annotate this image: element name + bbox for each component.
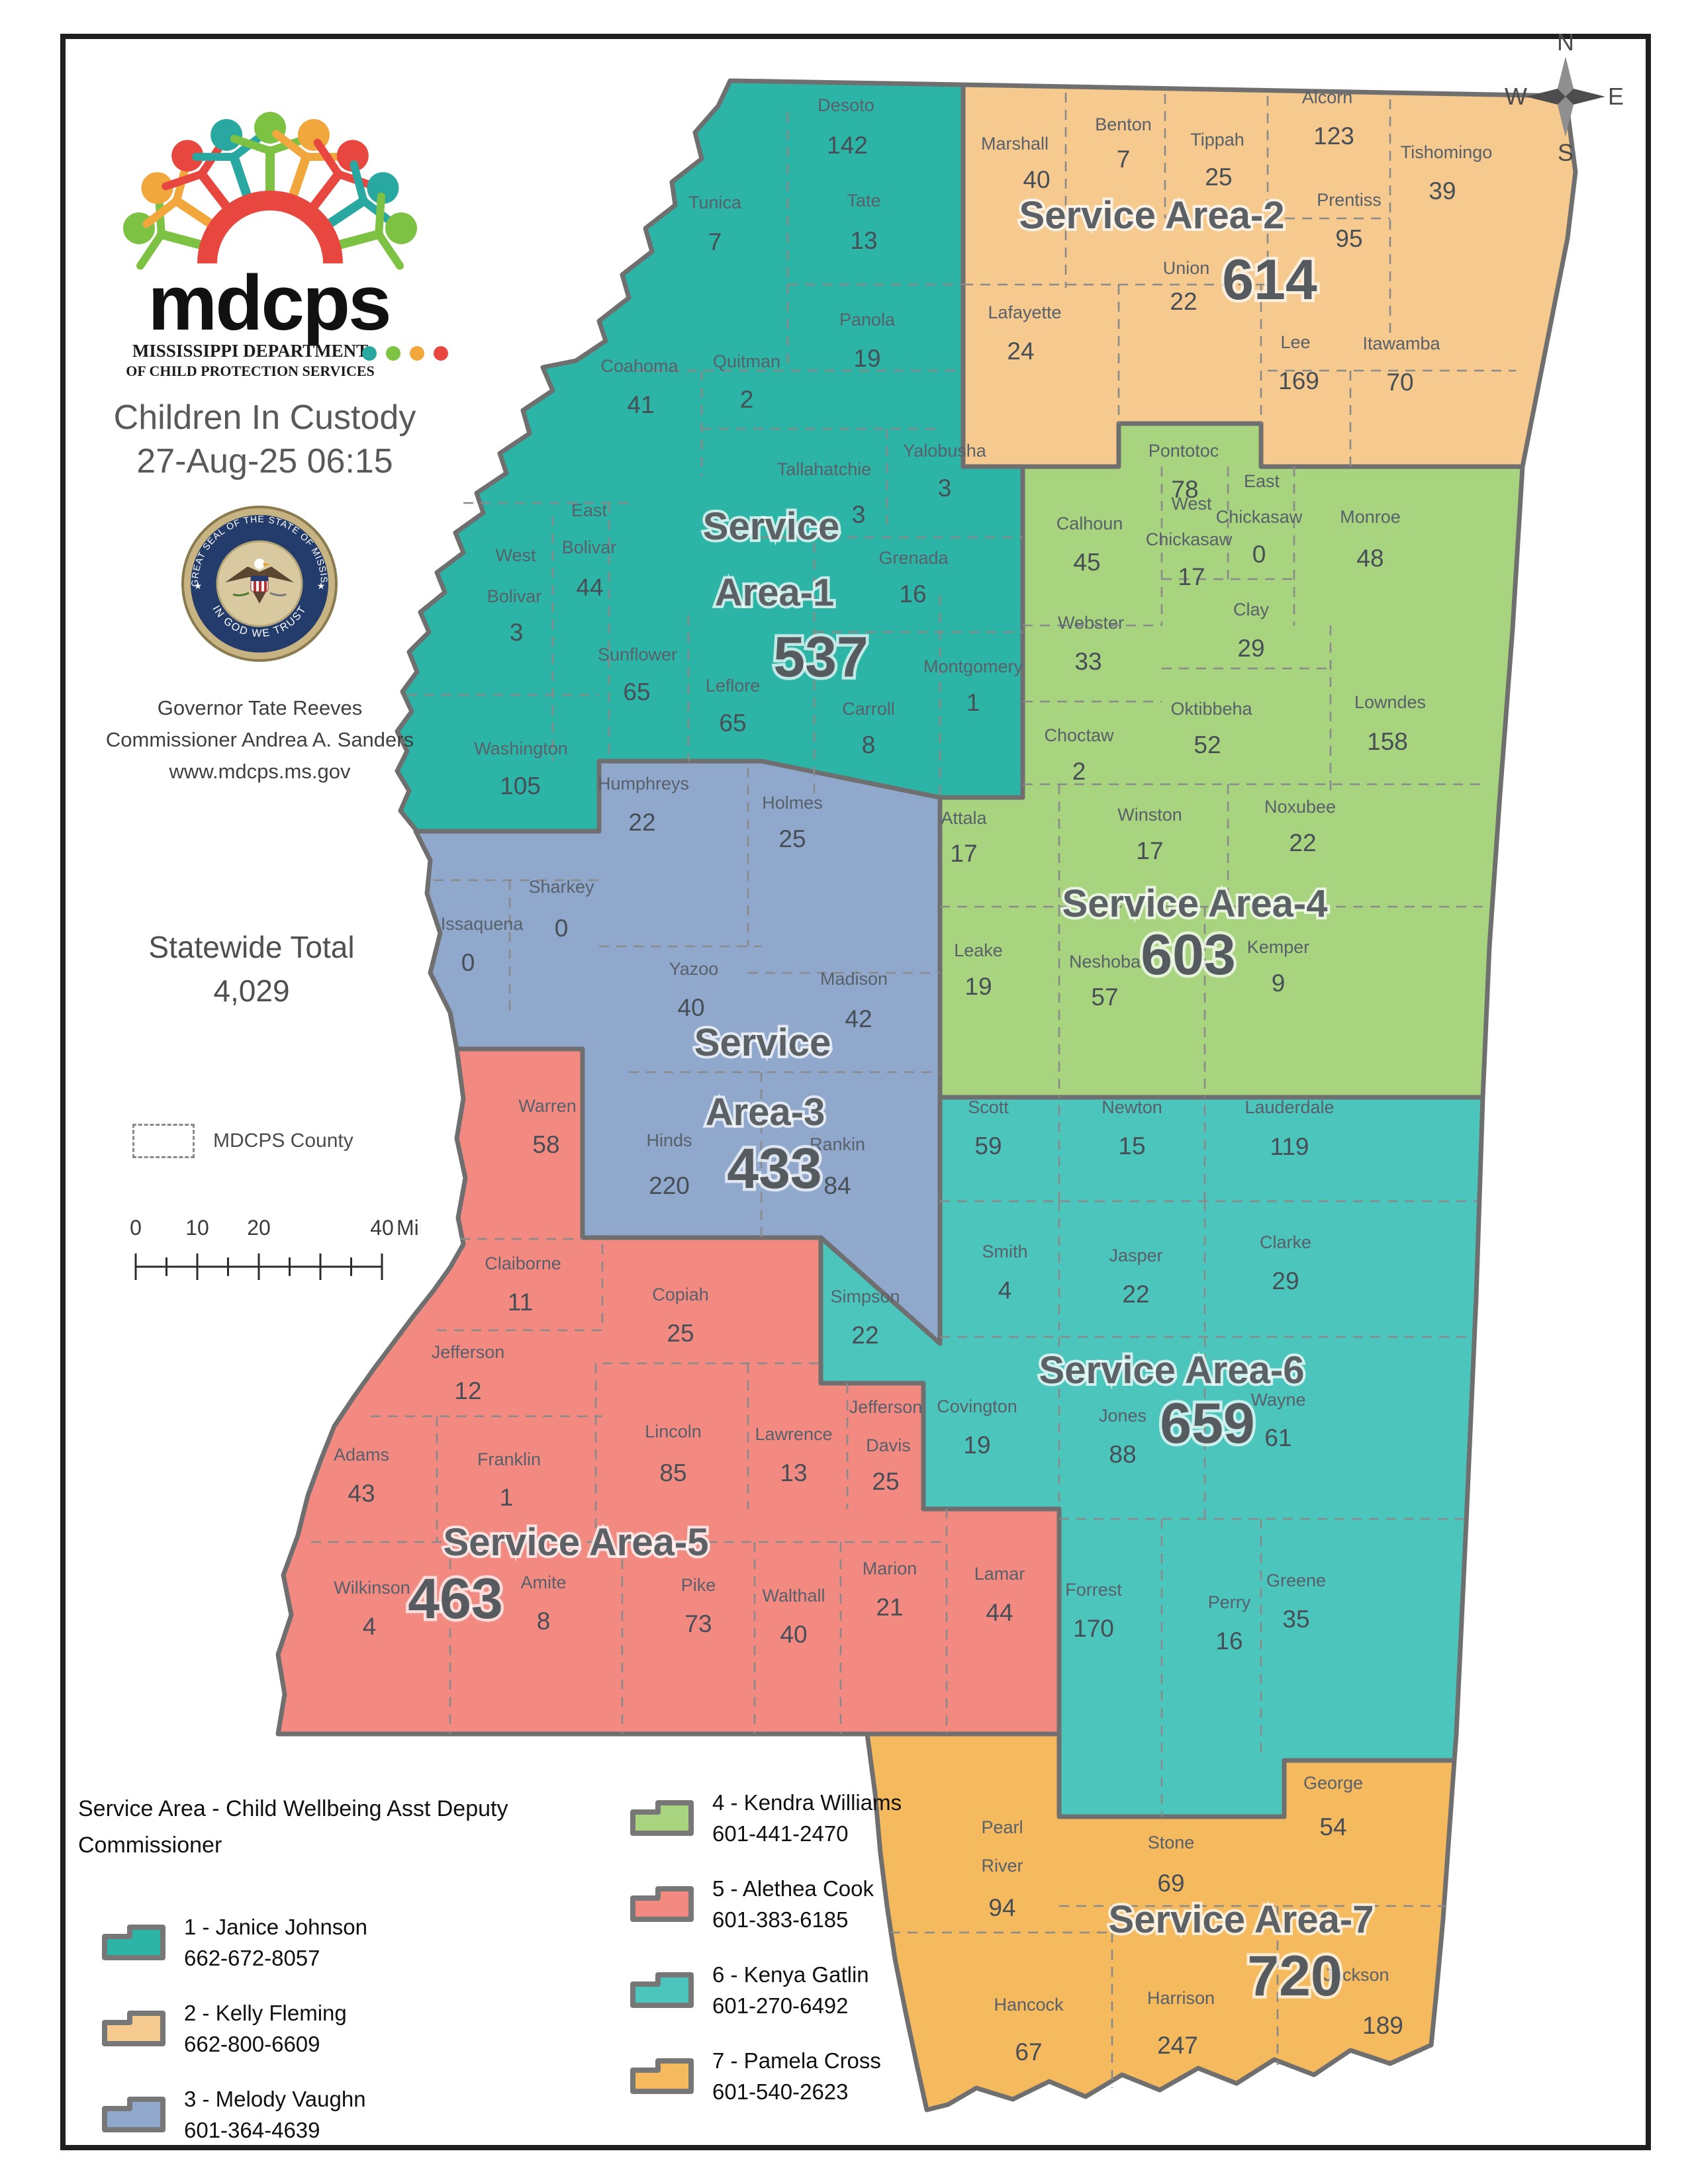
county-name: Itawamba xyxy=(1362,334,1440,353)
county-value: 25 xyxy=(1205,163,1232,191)
county-name: Kemper xyxy=(1247,937,1310,957)
county-name: Pearl xyxy=(981,1817,1023,1837)
county-value: 1 xyxy=(966,689,980,716)
county-value: 13 xyxy=(850,227,877,254)
county-value: 69 xyxy=(1157,1870,1184,1897)
county-value: 8 xyxy=(862,731,876,758)
compass-n: N xyxy=(1557,28,1574,56)
legend-item-label: 1 - Janice Johnson xyxy=(184,1911,367,1942)
logo-subtitle-1: MISSISSIPPI DEPARTMENT xyxy=(132,341,368,361)
county-name: Tippah xyxy=(1190,130,1244,150)
county-name: Leake xyxy=(954,940,1003,960)
legend-item-label: 5 - Alethea Cook xyxy=(712,1873,874,1904)
county-name: Claiborne xyxy=(485,1253,561,1273)
county-name: Leflore xyxy=(706,676,761,696)
county-name: Marshall xyxy=(981,134,1049,154)
county-name: Oktibbeha xyxy=(1170,699,1252,719)
county-name: River xyxy=(981,1856,1023,1876)
county-value: 142 xyxy=(827,132,868,159)
service-area-label: Service xyxy=(694,1021,831,1064)
county-value: 88 xyxy=(1109,1441,1136,1468)
county-name: Attala xyxy=(941,808,987,828)
county-name: Marion xyxy=(863,1559,917,1578)
county-value: 24 xyxy=(1007,338,1034,365)
county-value: 22 xyxy=(851,1322,878,1349)
county-value: 45 xyxy=(1073,549,1100,576)
county-name: Bolivar xyxy=(562,537,617,557)
county-value: 2 xyxy=(1072,758,1086,785)
logo-dot-green-icon xyxy=(386,346,400,361)
county-name: Jefferson xyxy=(849,1397,923,1417)
county-value: 35 xyxy=(1282,1606,1309,1633)
county-value: 2 xyxy=(740,386,754,413)
county-name: Smith xyxy=(982,1242,1027,1261)
legend-item: 4 - Kendra Williams601-441-2470 xyxy=(628,1787,902,1849)
county-name: Clay xyxy=(1233,600,1270,619)
county-value: 22 xyxy=(628,809,655,836)
legend-item-phone: 601-540-2623 xyxy=(712,2076,881,2107)
county-name: Stone xyxy=(1148,1833,1195,1852)
county-name: Alcorn xyxy=(1302,87,1353,107)
mdcps-logo-graphic: mdcps MISSISSIPPI DEPARTMENT OF CHILD PR… xyxy=(91,57,449,388)
county-value: 33 xyxy=(1074,648,1102,675)
county-value: 54 xyxy=(1319,1813,1346,1841)
county-name: Clarke xyxy=(1260,1232,1311,1252)
county-value: 17 xyxy=(1136,837,1163,864)
county-value: 22 xyxy=(1170,288,1197,315)
county-name: Carroll xyxy=(842,699,895,719)
county-name: Franklin xyxy=(477,1449,541,1469)
county-name: Holmes xyxy=(762,793,823,813)
legend-item-label: 7 - Pamela Cross xyxy=(712,2045,881,2076)
scale-bar-line-icon xyxy=(136,1253,382,1280)
logo-subtitle-2: OF CHILD PROTECTION SERVICES xyxy=(126,363,375,379)
county-value: 0 xyxy=(461,949,475,976)
county-name: Tunica xyxy=(688,193,742,212)
county-value: 70 xyxy=(1386,369,1413,396)
commissioner-line: Commissioner Andrea A. Sanders xyxy=(79,724,440,756)
county-name: Walthall xyxy=(762,1586,825,1606)
county-value: 65 xyxy=(623,678,650,705)
county-value: 59 xyxy=(974,1132,1002,1160)
legend-item: 7 - Pamela Cross601-540-2623 xyxy=(628,2045,902,2107)
county-name: Noxubee xyxy=(1264,797,1336,817)
county-name: Monroe xyxy=(1340,507,1401,527)
county-value: 11 xyxy=(508,1289,533,1316)
county-name: Warren xyxy=(518,1096,577,1116)
county-name: Forrest xyxy=(1065,1580,1122,1600)
county-name: Humphreys xyxy=(598,774,689,794)
county-name: Lee xyxy=(1280,332,1310,352)
county-value: 17 xyxy=(950,840,977,867)
legend-item: 5 - Alethea Cook601-383-6185 xyxy=(628,1873,902,1935)
county-name: Scott xyxy=(968,1097,1009,1117)
mdcps-logo: mdcps MISSISSIPPI DEPARTMENT OF CHILD PR… xyxy=(91,57,449,388)
service-area-total: 659 xyxy=(1160,1392,1255,1455)
legend-swatch-icon xyxy=(628,1884,696,1925)
county-value: 84 xyxy=(823,1172,851,1199)
service-area-total: 433 xyxy=(727,1137,822,1201)
state-seal: THE GREAT SEAL OF THE STATE OF MISSISSIP… xyxy=(180,504,339,663)
page-datetime: 27-Aug-25 06:15 xyxy=(79,439,450,483)
county-value: 22 xyxy=(1289,829,1316,856)
governor-line: Governor Tate Reeves xyxy=(79,692,440,724)
logo-dot-orange-icon xyxy=(410,346,424,361)
county-name: Amite xyxy=(520,1572,566,1592)
county-value: 22 xyxy=(1122,1281,1149,1308)
service-area-total: 463 xyxy=(408,1567,503,1631)
seal-star-right-icon: ★ xyxy=(317,580,326,591)
county-name: Copiah xyxy=(652,1285,709,1304)
county-name: Montgomery xyxy=(923,657,1023,676)
county-name: Lafayette xyxy=(988,302,1061,322)
county-name: Sharkey xyxy=(528,877,594,897)
county-name: Jasper xyxy=(1109,1246,1162,1265)
credits-block: Governor Tate Reeves Commissioner Andrea… xyxy=(79,692,440,788)
county-value: 9 xyxy=(1272,970,1286,997)
legend-swatch-icon xyxy=(628,1797,696,1839)
county-value: 95 xyxy=(1335,225,1362,252)
legend-item-label: 6 - Kenya Gatlin xyxy=(712,1959,869,1990)
county-value: 52 xyxy=(1194,731,1221,758)
service-area-label: Service Area-5 xyxy=(444,1521,709,1564)
county-value: 158 xyxy=(1367,728,1408,755)
county-name: Davis xyxy=(866,1435,911,1455)
page-title: Children In Custody xyxy=(79,396,450,439)
county-name: Issaquena xyxy=(441,914,524,934)
county-name: Harrison xyxy=(1147,1988,1215,2008)
scale-unit: Miles xyxy=(397,1216,420,1240)
service-area-label: Service Area-2 xyxy=(1019,194,1285,237)
county-value: 1 xyxy=(500,1484,514,1511)
county-value: 40 xyxy=(1023,166,1050,193)
county-value: 42 xyxy=(845,1005,872,1032)
county-name: Grenada xyxy=(878,548,949,568)
county-value: 43 xyxy=(348,1480,375,1507)
county-value: 25 xyxy=(778,825,806,852)
county-name: Madison xyxy=(820,969,888,989)
county-value: 29 xyxy=(1237,635,1264,662)
logo-dot-red-icon xyxy=(434,346,448,361)
county-value: 21 xyxy=(876,1594,903,1621)
county-name: Benton xyxy=(1095,114,1152,134)
county-value: 94 xyxy=(988,1894,1015,1921)
county-name: Chickasaw xyxy=(1216,507,1303,527)
county-value: 17 xyxy=(1178,563,1205,590)
county-value: 25 xyxy=(872,1468,899,1495)
website-line: www.mdcps.ms.gov xyxy=(79,756,440,788)
county-name: George xyxy=(1303,1773,1363,1793)
county-value: 170 xyxy=(1073,1615,1114,1642)
county-name: Tallahatchie xyxy=(777,459,872,479)
county-value: 169 xyxy=(1278,367,1319,394)
service-area-total: 603 xyxy=(1141,923,1236,987)
county-symbol-icon xyxy=(132,1124,195,1158)
county-name: Webster xyxy=(1058,613,1124,633)
service-area-label: Area-3 xyxy=(706,1091,825,1134)
county-value: 220 xyxy=(649,1172,690,1199)
service-area-label: Area-1 xyxy=(715,571,835,614)
county-value: 7 xyxy=(1117,146,1131,173)
legend-item: 6 - Kenya Gatlin601-270-6492 xyxy=(628,1959,902,2021)
scale-20: 20 xyxy=(247,1216,271,1240)
legend-swatch-icon xyxy=(628,1970,696,2011)
compass-s: S xyxy=(1558,139,1573,166)
county-value: 12 xyxy=(454,1377,481,1404)
legend-item: 3 - Melody Vaughn601-364-4639 xyxy=(99,2083,367,2146)
legend-swatch-icon xyxy=(99,1922,168,1963)
county-value: 13 xyxy=(780,1459,807,1486)
county-value: 105 xyxy=(500,772,541,799)
legend-item-phone: 601-441-2470 xyxy=(712,1818,902,1849)
seal-star-left-icon: ★ xyxy=(194,580,203,591)
county-value: 29 xyxy=(1272,1267,1299,1295)
logo-people-fan-icon xyxy=(123,112,417,266)
legend-item-label: 2 - Kelly Fleming xyxy=(184,1997,347,2028)
legend-item-phone: 601-270-6492 xyxy=(712,1990,869,2021)
legend-swatch-icon xyxy=(628,2056,696,2097)
county-name: West xyxy=(495,545,536,565)
legend-item-phone: 601-383-6185 xyxy=(712,1904,874,1935)
county-value: 3 xyxy=(852,501,866,528)
legend-title-line1: Service Area - Child Wellbeing Asst Depu… xyxy=(78,1791,601,1827)
county-value: 65 xyxy=(719,709,746,737)
legend-column-1: 1 - Janice Johnson662-672-80572 - Kelly … xyxy=(99,1911,367,2169)
county-name: Greene xyxy=(1266,1570,1326,1590)
logo-wordmark: mdcps xyxy=(148,259,389,347)
county-name: Washington xyxy=(474,739,568,758)
county-value: 44 xyxy=(576,574,603,601)
poster-page: { "header": { "logo_text": "mdcps", "log… xyxy=(0,0,1688,2184)
scale-0: 0 xyxy=(130,1216,142,1240)
legend-item-label: 4 - Kendra Williams xyxy=(712,1787,902,1818)
county-name: Lawrence xyxy=(755,1424,832,1444)
legend-item-label: 3 - Melody Vaughn xyxy=(184,2083,366,2115)
county-value: 61 xyxy=(1264,1424,1291,1451)
county-value: 25 xyxy=(667,1320,694,1347)
county-value: 4 xyxy=(363,1613,377,1640)
legend-item-phone: 662-800-6609 xyxy=(184,2028,347,2060)
county-value: 85 xyxy=(659,1459,686,1486)
county-value: 16 xyxy=(899,580,926,608)
service-area-label: Service Area-6 xyxy=(1039,1349,1305,1392)
county-name: Lauderdale xyxy=(1244,1097,1334,1117)
county-name: Tate xyxy=(847,191,880,210)
county-value: 19 xyxy=(963,1432,990,1459)
county-name: Adams xyxy=(334,1445,389,1465)
compass-e: E xyxy=(1608,83,1624,110)
county-name: Winston xyxy=(1117,805,1182,825)
county-name: Pike xyxy=(681,1575,716,1595)
county-name: Yalobusha xyxy=(903,441,987,461)
county-value: 123 xyxy=(1313,122,1354,150)
county-name: Hinds xyxy=(646,1130,692,1150)
county-name: Bolivar xyxy=(487,586,542,606)
legend-item: 2 - Kelly Fleming662-800-6609 xyxy=(99,1997,367,2060)
county-name: Prentiss xyxy=(1317,190,1382,210)
county-value: 40 xyxy=(780,1621,807,1648)
county-value: 3 xyxy=(938,475,952,502)
county-name: West xyxy=(1171,494,1212,514)
service-area-total: 614 xyxy=(1222,248,1317,312)
county-name: Jones xyxy=(1099,1406,1147,1426)
legend-item-phone: 601-364-4639 xyxy=(184,2115,366,2146)
county-name: Pontotoc xyxy=(1149,441,1219,461)
county-name: Wayne xyxy=(1250,1390,1305,1410)
county-name: Chickasaw xyxy=(1146,529,1233,549)
county-value: 119 xyxy=(1270,1133,1309,1160)
legend-title: Service Area - Child Wellbeing Asst Depu… xyxy=(78,1791,601,1864)
county-name: East xyxy=(571,500,608,520)
title-block: Children In Custody 27-Aug-25 06:15 xyxy=(79,396,450,483)
statewide-total-value: 4,029 xyxy=(79,969,424,1013)
legend-item-phone: 662-672-8057 xyxy=(184,1942,367,1974)
county-value: 247 xyxy=(1157,2032,1198,2059)
county-name: Hancock xyxy=(994,1995,1064,2015)
county-value: 58 xyxy=(532,1131,559,1158)
county-name: Wilkinson xyxy=(334,1578,410,1598)
county-name: Quitman xyxy=(713,351,780,371)
county-value: 48 xyxy=(1356,545,1383,572)
county-value: 19 xyxy=(853,345,880,372)
county-name: Desoto xyxy=(818,95,874,115)
county-value: 8 xyxy=(537,1608,551,1635)
county-value: 40 xyxy=(677,994,704,1021)
county-name: Jefferson xyxy=(432,1342,505,1362)
logo-arc-icon xyxy=(207,201,333,263)
scale-bar: 0 10 20 40 Miles xyxy=(129,1215,420,1288)
county-value: 67 xyxy=(1015,2038,1042,2066)
service-area-total: 537 xyxy=(773,625,868,689)
county-value: 3 xyxy=(510,619,524,646)
statewide-total-label: Statewide Total xyxy=(79,925,424,969)
county-symbol-label: MDCPS County xyxy=(213,1130,353,1152)
legend-item: 1 - Janice Johnson662-672-8057 xyxy=(99,1911,367,1974)
legend-swatch-icon xyxy=(99,2008,168,2049)
county-name: East xyxy=(1244,471,1280,491)
county-name: Union xyxy=(1163,258,1210,278)
scale-10: 10 xyxy=(185,1216,209,1240)
county-name: Newton xyxy=(1102,1097,1162,1117)
county-symbol-legend: MDCPS County xyxy=(132,1124,353,1158)
county-name: Lincoln xyxy=(645,1422,702,1441)
county-value: 16 xyxy=(1215,1627,1243,1655)
county-value: 0 xyxy=(1252,541,1266,568)
service-area-total: 720 xyxy=(1247,1944,1342,2008)
county-name: Simpson xyxy=(830,1287,900,1306)
service-area-label: Service xyxy=(703,505,839,548)
county-name: Sunflower xyxy=(598,645,677,664)
county-value: 41 xyxy=(627,391,654,418)
logo-dot-teal-icon xyxy=(362,346,377,361)
county-name: Choctaw xyxy=(1044,725,1114,745)
county-name: Covington xyxy=(937,1396,1017,1416)
county-value: 189 xyxy=(1362,2012,1403,2039)
county-name: Perry xyxy=(1208,1592,1251,1612)
county-name: Lowndes xyxy=(1354,692,1426,712)
county-value: 44 xyxy=(986,1599,1013,1626)
county-value: 4 xyxy=(998,1277,1012,1304)
county-value: 39 xyxy=(1429,177,1456,205)
county-name: Calhoun xyxy=(1056,514,1123,533)
county-value: 19 xyxy=(964,973,992,1000)
county-name: Tishomingo xyxy=(1401,142,1493,162)
county-name: Lamar xyxy=(974,1564,1025,1584)
county-value: 73 xyxy=(684,1610,712,1637)
county-name: Coahoma xyxy=(600,356,679,376)
legend-swatch-icon xyxy=(99,2094,168,2135)
county-name: Panola xyxy=(839,310,896,330)
county-name: Neshoba xyxy=(1069,952,1141,972)
service-area-label: Service Area-4 xyxy=(1062,882,1328,925)
statewide-total-block: Statewide Total 4,029 xyxy=(79,925,424,1013)
scale-40: 40 xyxy=(370,1216,394,1240)
compass-w: W xyxy=(1505,83,1527,110)
service-area-label: Service Area-7 xyxy=(1109,1898,1374,1941)
county-value: 0 xyxy=(555,915,569,942)
legend-column-2: 4 - Kendra Williams601-441-24705 - Aleth… xyxy=(628,1787,902,2131)
legend-title-line2: Commissioner xyxy=(78,1827,601,1864)
county-value: 7 xyxy=(708,228,722,255)
county-value: 57 xyxy=(1091,983,1118,1011)
county-name: Yazoo xyxy=(669,959,719,979)
county-value: 15 xyxy=(1118,1132,1145,1160)
